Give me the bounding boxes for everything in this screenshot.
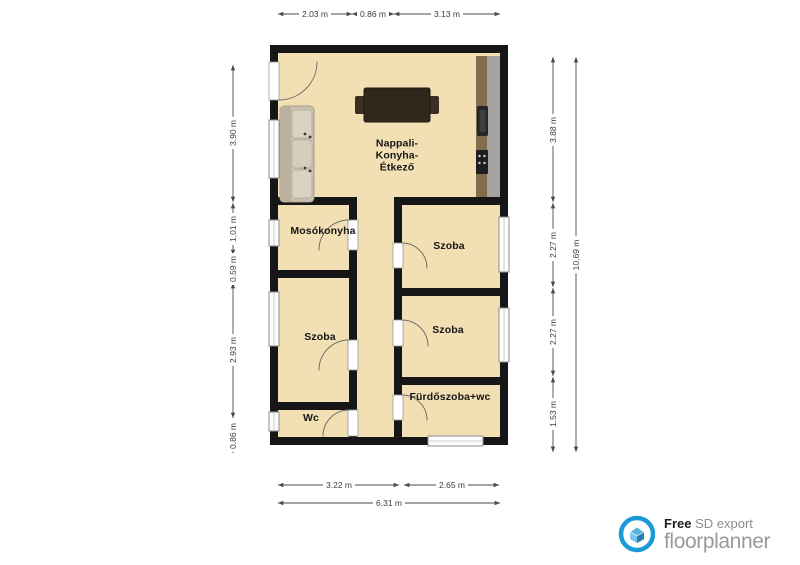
floorplanner-logo-icon [616,513,658,555]
dining-table [355,88,439,122]
floorplan-export-page: Nappali- Konyha- Étkező Mosókonyha Szoba… [0,0,800,565]
export-type-label: SD export [695,516,753,531]
kitchen-stove [476,150,488,174]
wall-laundry-bottom [270,270,357,278]
wall-top [270,45,508,53]
free-label: Free [664,516,691,531]
brand-name: floorplanner [664,531,770,552]
floorplanner-logo-text: Free SD export floorplanner [664,517,770,552]
kitchen-counter [476,56,500,197]
wall-bedrooms-right-divider [394,288,508,296]
floor-plan-drawing [0,0,800,565]
window-bedroom-top-right [499,217,509,272]
window-bathroom-bottom [428,436,483,446]
window-living-left [269,120,279,178]
wall-living-bottom-right [394,197,508,205]
window-bedroom-mid-right [499,308,509,362]
wall-bathroom-top [394,377,508,385]
sofa [280,106,314,202]
floorplanner-logo: Free SD export floorplanner [616,513,770,555]
window-laundry-left [269,220,279,246]
wall-wc-top [270,402,357,410]
window-wc-left [269,412,279,431]
window-bedroom-left [269,292,279,346]
